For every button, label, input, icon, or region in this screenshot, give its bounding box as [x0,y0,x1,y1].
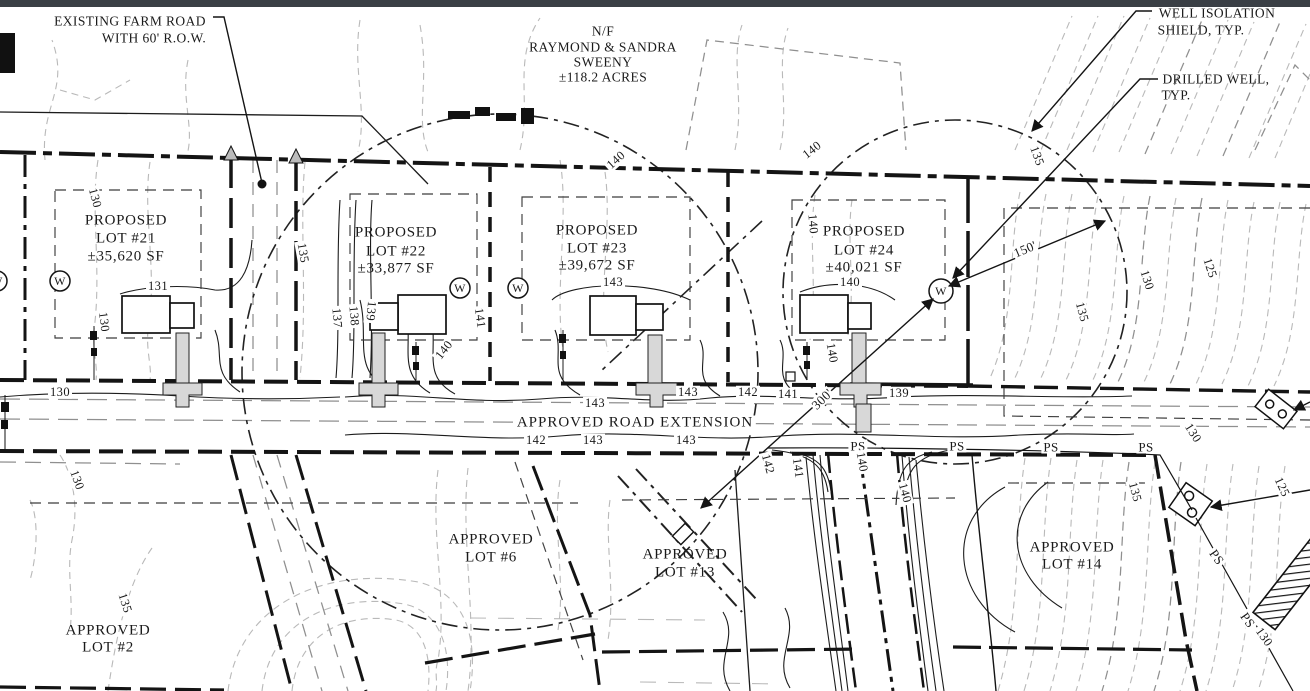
contour-label: 139 [364,299,379,324]
contour-label: 141 [776,388,800,401]
lot6-number: LOT #6 [465,551,517,566]
contour-label: 130 [96,309,111,334]
road-extension-label: APPROVED ROAD EXTENSION [514,416,756,431]
contour-label: 131 [146,280,170,293]
lot23-number: LOT #23 [567,242,627,257]
lot21-number: LOT #21 [96,232,156,247]
contour-label: 140 [838,276,862,289]
callout-neighbor-name: RAYMOND & SANDRA [529,40,677,54]
lot13-number: LOT #13 [655,566,715,581]
site-plan-sheet: EXISTING FARM ROAD WITH 60' R.O.W. N/F R… [0,0,1310,691]
callout-neighbor-acres: ±118.2 ACRES [559,70,647,84]
lot23-area: ±39,672 SF [559,259,636,274]
ps-label: PS [1041,441,1060,454]
contour-label: 140 [854,449,870,475]
well-symbol: W [935,285,947,297]
contours-light-layer [30,16,1310,691]
contour-label: 139 [887,387,911,400]
lot24-area: ±40,021 SF [826,261,903,276]
contour-label: 141 [472,305,488,330]
contour-label: 143 [581,434,605,447]
contour-label: 135 [295,240,311,266]
lot2-number: LOT #2 [82,641,134,656]
lot2-title: APPROVED [66,624,151,639]
lot24-number: LOT #24 [834,244,894,259]
callout-drilled-well-typ: TYP. [1162,88,1191,102]
contour-label: 142 [736,386,760,399]
contour-label: 143 [601,276,625,289]
callout-drilled-well: DRILLED WELL, [1163,72,1270,86]
lot14-number: LOT #14 [1042,558,1102,573]
lot6-title: APPROVED [449,533,534,548]
well-symbol: W [454,282,466,294]
contour-label: 143 [583,397,607,410]
lot22-number: LOT #22 [366,245,426,260]
contour-label: 140 [824,340,840,366]
callout-well-shield-typ: SHIELD, TYP. [1158,23,1245,37]
ps-label: PS [1136,441,1155,454]
well-symbol: W [0,275,3,287]
contours-solid-layer [0,112,1134,691]
ps-label: PS [947,440,966,453]
contour-label: 138 [347,304,362,329]
callout-well-shield: WELL ISOLATION [1159,6,1275,20]
callout-existing-farm-road: EXISTING FARM ROAD [54,14,206,28]
contour-label: 142 [524,434,548,447]
contour-label: 143 [674,434,698,447]
lot23-title: PROPOSED [556,224,638,239]
contour-label: 140 [806,212,821,237]
lot13-title: APPROVED [643,548,728,563]
lot21-title: PROPOSED [85,214,167,229]
contour-label: 141 [790,455,806,480]
contour-label: 130 [48,386,72,399]
callout-existing-farm-road-row: WITH 60' R.O.W. [102,31,206,45]
callout-neighbor-nf: N/F [592,24,614,38]
contour-label: 137 [330,306,345,331]
lot14-title: APPROVED [1030,541,1115,556]
well-symbol: W [512,282,524,294]
lot21-area: ±35,620 SF [88,250,165,265]
well-symbol: W [54,275,66,287]
lot22-area: ±33,877 SF [358,262,435,277]
lot22-title: PROPOSED [355,226,437,241]
lot24-title: PROPOSED [823,225,905,240]
callout-neighbor-surname: SWEENY [574,55,633,69]
contour-label: 143 [676,386,700,399]
plan-linework [0,0,1310,691]
